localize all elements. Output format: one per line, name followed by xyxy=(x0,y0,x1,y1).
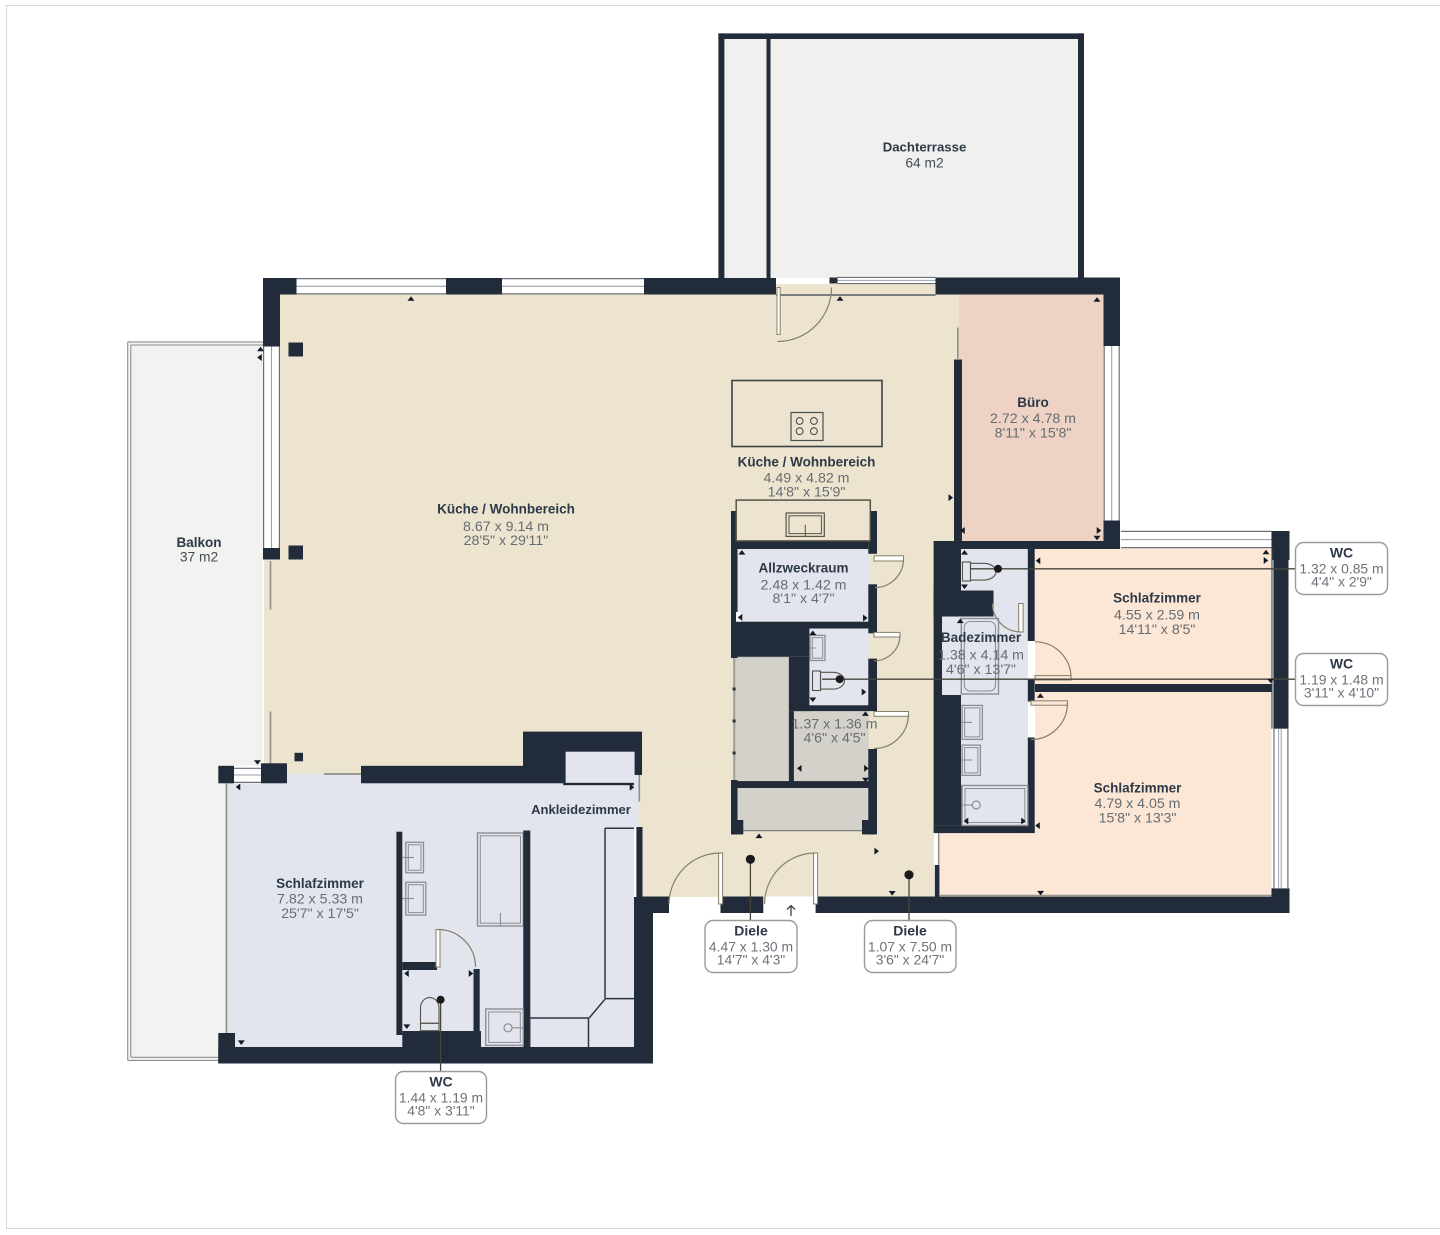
svg-text:3'11" x 4'10": 3'11" x 4'10" xyxy=(1304,685,1379,701)
svg-text:Schlafzimmer: Schlafzimmer xyxy=(1094,781,1183,796)
svg-text:4'8" x 3'11": 4'8" x 3'11" xyxy=(407,1103,474,1119)
svg-text:Badezimmer: Badezimmer xyxy=(941,630,1022,645)
svg-text:WC: WC xyxy=(429,1074,452,1090)
svg-text:Schlafzimmer: Schlafzimmer xyxy=(276,876,365,891)
svg-text:Küche / Wohnbereich: Küche / Wohnbereich xyxy=(738,455,876,470)
svg-text:4'4" x 2'9": 4'4" x 2'9" xyxy=(1311,574,1372,590)
svg-text:8'1" x 4'7": 8'1" x 4'7" xyxy=(772,591,834,607)
svg-text:WC: WC xyxy=(1330,656,1353,672)
svg-text:4'6" x 4'5": 4'6" x 4'5" xyxy=(803,731,865,747)
svg-text:Diele: Diele xyxy=(734,923,768,939)
svg-text:15'8" x 13'3": 15'8" x 13'3" xyxy=(1099,811,1177,827)
svg-text:37 m2: 37 m2 xyxy=(180,550,218,565)
svg-text:Ankleidezimmer: Ankleidezimmer xyxy=(531,802,631,817)
svg-text:Schlafzimmer: Schlafzimmer xyxy=(1113,591,1202,606)
svg-text:4'6" x 13'7": 4'6" x 13'7" xyxy=(946,662,1016,678)
svg-text:WC: WC xyxy=(1330,545,1353,561)
svg-text:28'5" x 29'11": 28'5" x 29'11" xyxy=(464,533,549,549)
svg-text:Diele: Diele xyxy=(893,923,927,939)
svg-text:14'11" x 8'5": 14'11" x 8'5" xyxy=(1119,622,1196,638)
svg-text:25'7" x 17'5": 25'7" x 17'5" xyxy=(281,906,359,922)
svg-text:14'8" x 15'9": 14'8" x 15'9" xyxy=(768,485,846,501)
svg-text:Allzweckraum: Allzweckraum xyxy=(758,561,848,576)
svg-text:Balkon: Balkon xyxy=(176,535,221,550)
svg-text:14'7" x 4'3": 14'7" x 4'3" xyxy=(717,952,786,968)
svg-text:Küche / Wohnbereich: Küche / Wohnbereich xyxy=(437,502,575,517)
svg-text:Dachterrasse: Dachterrasse xyxy=(883,140,967,155)
svg-text:8'11" x 15'8": 8'11" x 15'8" xyxy=(995,426,1072,442)
svg-text:3'6" x 24'7": 3'6" x 24'7" xyxy=(876,952,945,968)
svg-text:Büro: Büro xyxy=(1017,395,1049,410)
svg-text:64 m2: 64 m2 xyxy=(905,156,943,171)
